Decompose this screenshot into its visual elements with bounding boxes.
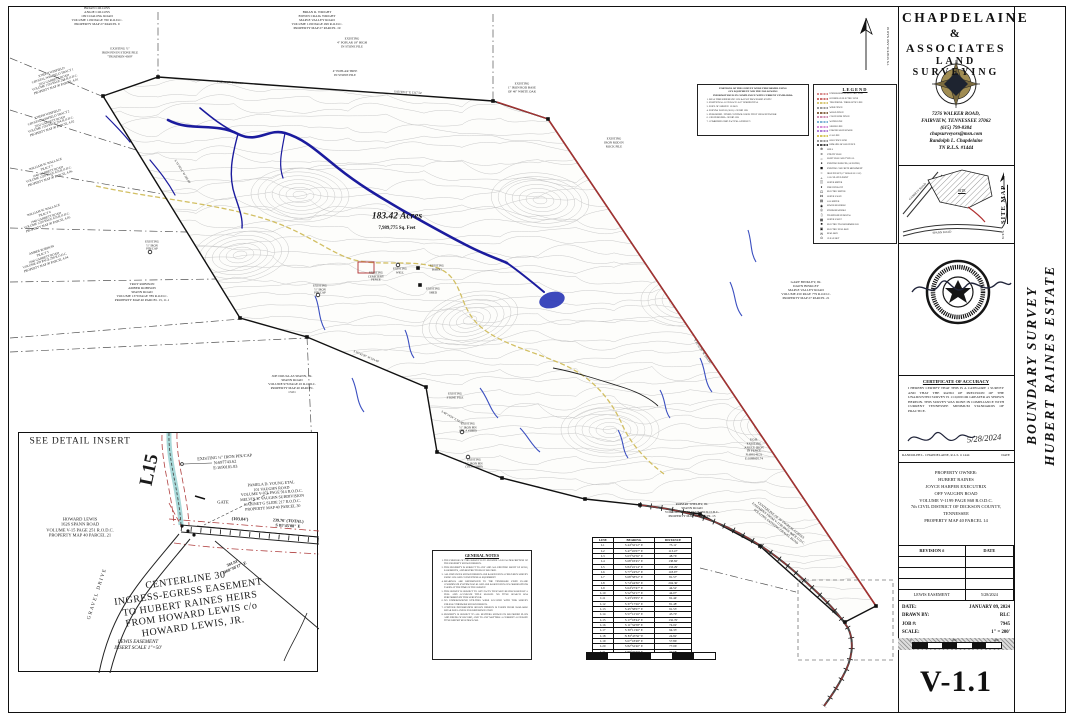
revision-header: DATE [965,546,1013,557]
boundary-corner-marker [418,283,422,287]
revision-header: REVISION # [899,546,966,557]
owner-block-line: HUBERT RAINES [902,477,1010,484]
legend-entry-label: ELECTRIC METER [827,191,845,193]
email: chapsurveyors@msn.com [902,132,1010,139]
legend-line-swatch [817,116,828,118]
revision-row [899,557,1014,568]
legend-line-swatch [817,112,828,114]
sheet-number: V-1.1 [920,665,992,699]
scale-tick-200: 200 [952,638,957,642]
firm-name-1: CHAPDELAINE [902,10,1010,26]
legend-entry-label: GAS LINE [830,135,840,137]
line-table-box: LINEBEARINGDISTANCEL1S 44°32'12" E73.11'… [592,537,692,643]
drawn-by-label: DRAWN BY: [902,612,929,620]
certificate-body: I HEREBY CERTIFY THAT THIS IS A CATEGORY… [908,386,1004,413]
legend-symbol-icon: ▯ [816,214,827,217]
legend-symbol-icon: ⨯ [816,153,827,156]
legend-entry-label: SEWER LINE [830,126,843,128]
boundary-corner-marker [416,266,420,270]
legend-entry-label: ELECTRIC TRANSFORMER PAD [827,224,859,226]
boundary-corner-marker [424,385,428,389]
address-line-2: FAIRVIEW, TENNESSEE 37062 [902,119,1010,126]
legend-entry-label: IRON PIN SET (½" REBAR W/ CAP) [827,173,861,175]
legend-line-swatch [817,135,828,137]
gps-note-item: GEOID MODEL: GEOID 12B [709,116,805,119]
boundary-corner-marker [638,503,642,507]
legend-line-swatch [817,93,828,95]
legend-entry-label: FIRE HYDRANT [827,187,843,189]
legend-entry-label: WATER VAULT [827,219,842,221]
gps-note-item: REAL TIME KINEMATIC GPS & POST PROCESSED… [709,98,805,101]
legend-entry-label: FORCED MAIN SEWER [830,130,853,132]
boundary-corner-marker [546,117,550,121]
legend-entry-label: GAS METER [827,201,839,203]
legend-entry-label: UTILITY POLE [827,154,842,156]
revision-table: REVISION #DATELEWIS EASEMENT5/28/2024 [898,545,1014,601]
legend-symbol-icon: ▣ [816,228,827,231]
general-note-item: NO UNDERGROUND UTILITIES WERE LOCATED WI… [444,599,528,605]
sidebar-scale-bar [912,642,1002,649]
owner-block-line: TENNESSEE [902,511,1010,518]
strip-divider [1014,6,1015,713]
property-owner-block: PROPERTY OWNER:HUBERT RAINESJOYCE HARPER… [902,470,1010,525]
firm-name-2: & ASSOCIATES [902,26,1010,56]
gps-note-item: PUBLISHED / FIXED CONTROL USED: TDOT GNS… [709,113,805,116]
boundary-corner-marker [491,99,495,103]
phone: (615) 799-8384 [902,126,1010,133]
sheet-number-box: V-1.1 [898,650,1014,713]
scale-value: 1" = 200' [991,629,1010,637]
site-map-label: SITE MAP [1000,180,1007,228]
detail-insert [18,432,318,672]
owner-block-line: PROPERTY OWNER: [902,470,1010,477]
boundary-corner-marker [758,544,762,548]
boundary-corner-marker [238,316,242,320]
general-note-item: ALL DISTANCES SHOWN HEREON ARE BASED UPO… [444,573,528,579]
legend-entry-label: CLEAN OUT [827,238,839,240]
legend-entry-label: CHAIN LINK FENCE [830,116,850,118]
legend-line-swatch [817,121,828,123]
revision-cell [899,557,966,568]
legend-entry-label: CALCULATED POINT [827,177,848,179]
revision-row [899,579,1014,590]
general-note-item: THE PURPOSE OF THIS SURVEY IS TO PROVIDE… [444,559,528,565]
general-note-item: PROPERTY IS SUBJECT TO ALL MATTERS SHOWN… [444,613,528,622]
owner-block-line: OFF VAUGHN ROAD [902,491,1010,498]
date-value: JANUARY 09, 2024 [969,604,1010,612]
sheet-title-line2: HUBERT RAINES ESTATE [1042,195,1058,535]
surveyor-name: Randolph L. Chapdelaine [902,139,1010,146]
legend-entry-label: ELECTRIC PULL BOX [827,229,849,231]
boundary-corner-marker [156,75,160,79]
drawn-by-value: RLC [1000,612,1010,620]
title-block: CHAPDELAINE & ASSOCIATES LAND SURVEYING [902,10,1010,78]
site-map-site: SITE [958,189,966,193]
iron-pin-marker [148,250,152,254]
legend-entry-label: TELEPHONE PEDESTAL [827,215,851,217]
detail-insert-art [19,433,319,673]
legend-entry-label: TELEPHONE / FIBER OPTIC LINE [830,102,863,104]
job-label: JOB #: [902,621,917,629]
scale-tick-0: 0 [910,638,912,642]
boundary-corner-marker [101,94,105,98]
iron-pin-marker [396,263,400,267]
boundary-corner-marker [305,335,309,339]
certificate-signer-row: RANDOLPH L. CHAPDELAINE, R.L.S. # 1444 D… [902,453,1010,457]
legend-entry-label: WOOD FENCE [830,112,844,114]
general-note-item: BEARINGS ARE REFERENCED TO THE TENNESSEE… [444,580,528,589]
license-number: TN R.L.S. #1444 [902,146,1010,153]
legend-box: LEGEND UNDERGROUND ELECTRIC LINEOVERHEAD… [813,84,897,244]
survey-sheet: PORTIONS OF THIS SURVEY WERE PERFORMED U… [0,0,1080,720]
legend-entry-label: WATER METER [827,182,842,184]
iron-pin-marker [466,455,470,459]
revision-cell: LEWIS EASEMENT [899,590,966,601]
legend-entry-label: SEWER MANHOLE [827,205,846,207]
boundary-corner-marker [698,512,702,516]
general-notes-box: GENERAL NOTES THE PURPOSE OF THIS SURVEY… [432,550,532,660]
certificate-title: CERTIFICATE OF ACCURACY [902,379,1010,384]
legend-line-swatch [817,98,828,100]
site-map-nts: N.T.S. [1001,228,1005,242]
boundary-corner-marker [843,620,847,624]
legend-entry-label: OVERHEAD ELECTRIC LINE [830,98,859,100]
gps-notes-box: PORTIONS OF THIS SURVEY WERE PERFORMED U… [697,84,809,136]
info-block: DATE:JANUARY 09, 2024 DRAWN BY:RLC JOB #… [902,604,1010,638]
date-label: DATE: [902,604,917,612]
legend-entry-label: WIRE FENCE [830,107,843,109]
general-note-item: THIS PROPERTY IS SUBJECT TO ANY AND ALL … [444,566,528,572]
gps-note-item: DATE OF SURVEY: 12/2023 [709,105,805,108]
job-value: 7945 [1000,621,1010,629]
legend-line-swatch [817,126,828,128]
legend-entry-label: WELL [827,149,833,151]
legend-line-swatch [817,107,828,109]
scale-tick-400: 400 [994,638,999,642]
boundary-corner-marker [500,476,504,480]
legend-symbol-icon: ▤ [816,200,827,203]
legend-symbol-icon: ♦ [816,186,827,189]
general-note-item: THIS SURVEY IS SUBJECT TO ANY FACTS THAT… [444,590,528,599]
sidebar-divider [898,6,899,713]
owner-block-line: PROPERTY MAP 40 PARCEL 14 [902,518,1010,525]
revision-row: LEWIS EASEMENT5/28/2024 [899,590,1014,601]
scale-label: SCALE: [902,629,920,637]
iron-pin-marker [316,293,320,297]
legend-entry-label: REMAINS OF OLD FENCE [830,144,856,146]
certificate-of-accuracy: CERTIFICATE OF ACCURACY I HEREBY CERTIFY… [902,379,1010,413]
legend-line-swatch [817,144,828,146]
legend-line-swatch [817,140,828,142]
legend-entry-label: STORM MANHOLE [827,210,846,212]
certificate-signer: RANDOLPH L. CHAPDELAINE, R.L.S. # 1444 [902,453,969,457]
owner-block-line: 7th CIVIL DISTRICT OF DICKSON COUNTY, [902,504,1010,511]
map-scale-bar [586,652,716,660]
revision-cell [965,568,1013,579]
legend-entry-label: MAIL BOX [827,233,838,235]
revision-cell [965,579,1013,590]
certificate-date-label: DATE [1001,453,1010,457]
boundary-corner-marker [435,450,439,454]
legend-entry-label: WATER LINE [830,121,843,123]
legend-symbol-icon: ⊙ [816,237,827,240]
legend-entry-label: WATER VALVE [827,196,842,198]
boundary-corner-marker [874,604,878,608]
legend-line-swatch [817,130,828,132]
owner-block-line: JOYCE HARPER EXECUTRIX [902,484,1010,491]
legend-entry-label: UNDERGROUND ELECTRIC LINE [830,93,863,95]
revision-cell: 5/28/2024 [965,590,1013,601]
gps-note-item: POSITIONAL ACCURACY: 0.07' HORIZONTAL [709,101,805,104]
sheet-title-line1: BOUNDARY SURVEY [1024,195,1040,535]
iron-pin-marker [460,430,464,434]
legend-entry: ⊙CLEAN OUT [816,237,894,242]
firm-address: 7276 WALKER ROAD, FAIRVIEW, TENNESSEE 37… [902,112,1010,153]
revision-cell [965,557,1013,568]
revision-cell [899,579,966,590]
owner-block-line: VOLUME V-1199 PAGE 868 R.O.D.C. [902,498,1010,505]
general-note-item: CONTOUR INFORMATION SHOWN HEREON IS TAKE… [444,606,528,612]
gps-note-item: DATUM: NAD 83 (2011) / GEOID 12B [709,109,805,112]
north-arrow [860,18,872,70]
line-table: LINEBEARINGDISTANCEL1S 44°32'12" E73.11'… [592,537,692,655]
legend-line-swatch [817,102,828,104]
gps-note-item: COMBINED GRID FACTOR: 0.99995271 [709,120,805,123]
scale-band: 0 200 400 [898,638,1014,650]
legend-entry-label: EXISTING IRON PIN (AS NOTED) [827,163,860,165]
revision-row [899,568,1014,579]
legend-entry-label: OLD FENCE LINE [830,140,848,142]
revision-cell [899,568,966,579]
legend-symbol-icon: ○ [816,172,827,175]
legend-entry-label: LIGHT POLE AND TYPICAL [827,158,854,160]
boundary-corner-marker [583,497,587,501]
legend-entry-label: EXISTING CONCRETE MONUMENT [827,168,863,170]
firm-name-3: LAND SURVEYING [902,56,1010,78]
general-notes-title: GENERAL NOTES [436,553,528,558]
address-line-1: 7276 WALKER ROAD, [902,112,1010,119]
